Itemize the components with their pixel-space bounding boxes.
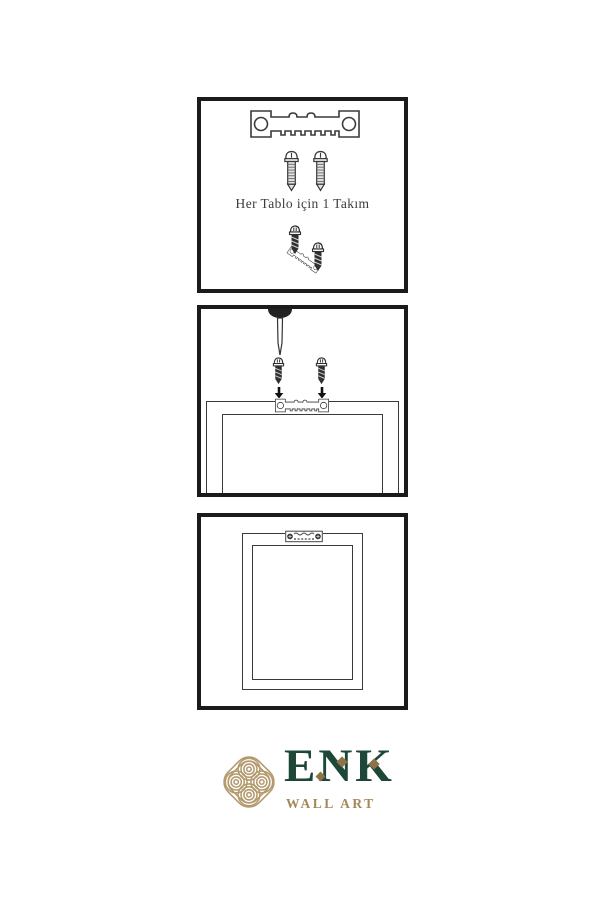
screw-icon — [282, 150, 301, 192]
panel-mounting-step — [197, 305, 408, 497]
brand-subtitle: WALL ART — [286, 796, 376, 812]
panel-hardware-kit: Her Tablo için 1 Takım — [197, 97, 408, 293]
frame-back-inner-edge — [222, 414, 383, 493]
instruction-poster: Her Tablo için 1 Takım — [0, 0, 600, 900]
awl-icon — [265, 309, 295, 359]
panel-finished-frame — [197, 513, 408, 710]
screw-icon — [311, 150, 330, 192]
frame-back-inner-edge — [252, 545, 353, 680]
screw-icon — [314, 357, 329, 385]
screw-icon — [271, 357, 286, 385]
sawtooth-hanger-icon — [275, 398, 329, 413]
hanger-screw-assembly-icon — [286, 223, 330, 275]
brand-logo: ENK WALL ART — [210, 742, 410, 832]
sawtooth-hanger-icon — [250, 109, 360, 139]
kit-caption: Her Tablo için 1 Takım — [201, 196, 404, 212]
celtic-knot-icon — [217, 747, 281, 817]
brand-name: ENK — [284, 743, 395, 790]
mounted-hanger-icon — [285, 530, 323, 543]
